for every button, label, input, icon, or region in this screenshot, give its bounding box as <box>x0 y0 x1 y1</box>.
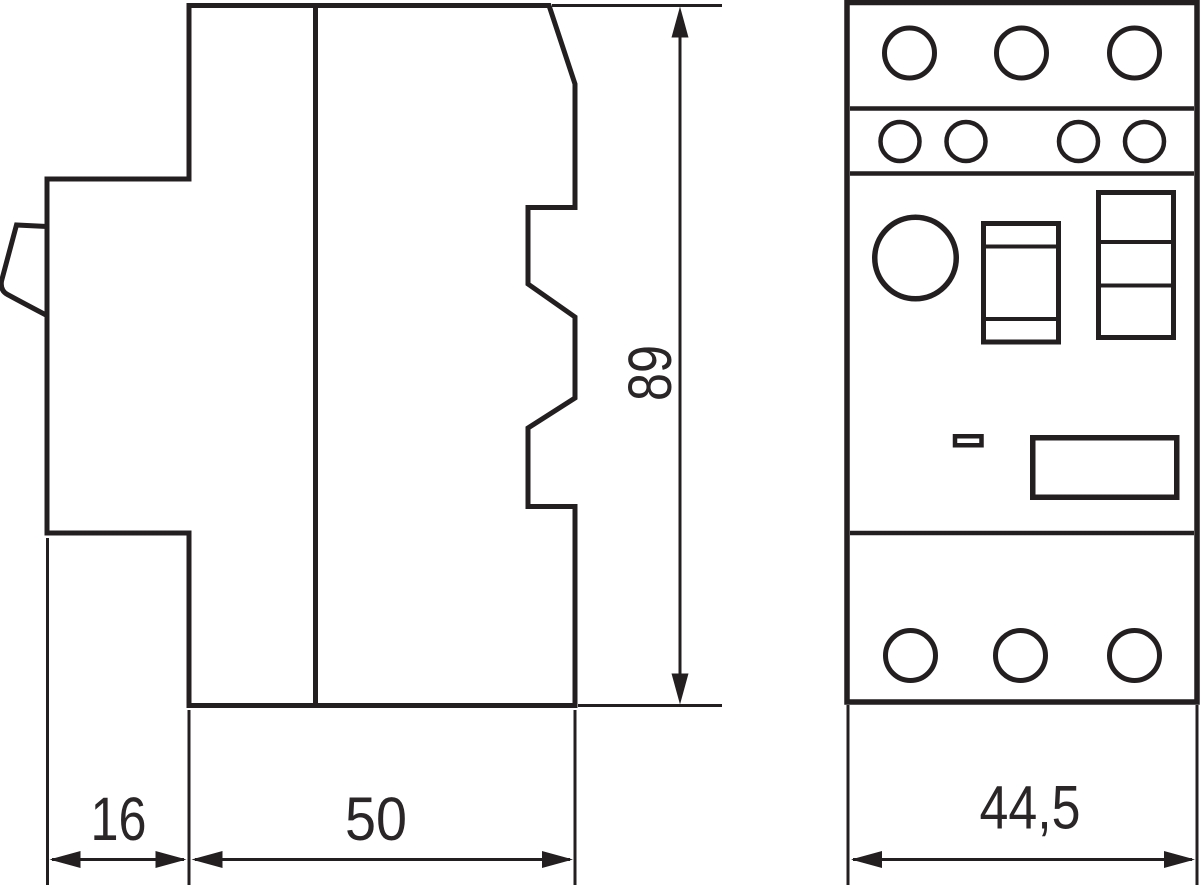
svg-text:44,5: 44,5 <box>980 774 1081 842</box>
svg-text:16: 16 <box>91 785 147 853</box>
svg-text:50: 50 <box>345 785 407 853</box>
svg-text:89: 89 <box>616 345 684 401</box>
